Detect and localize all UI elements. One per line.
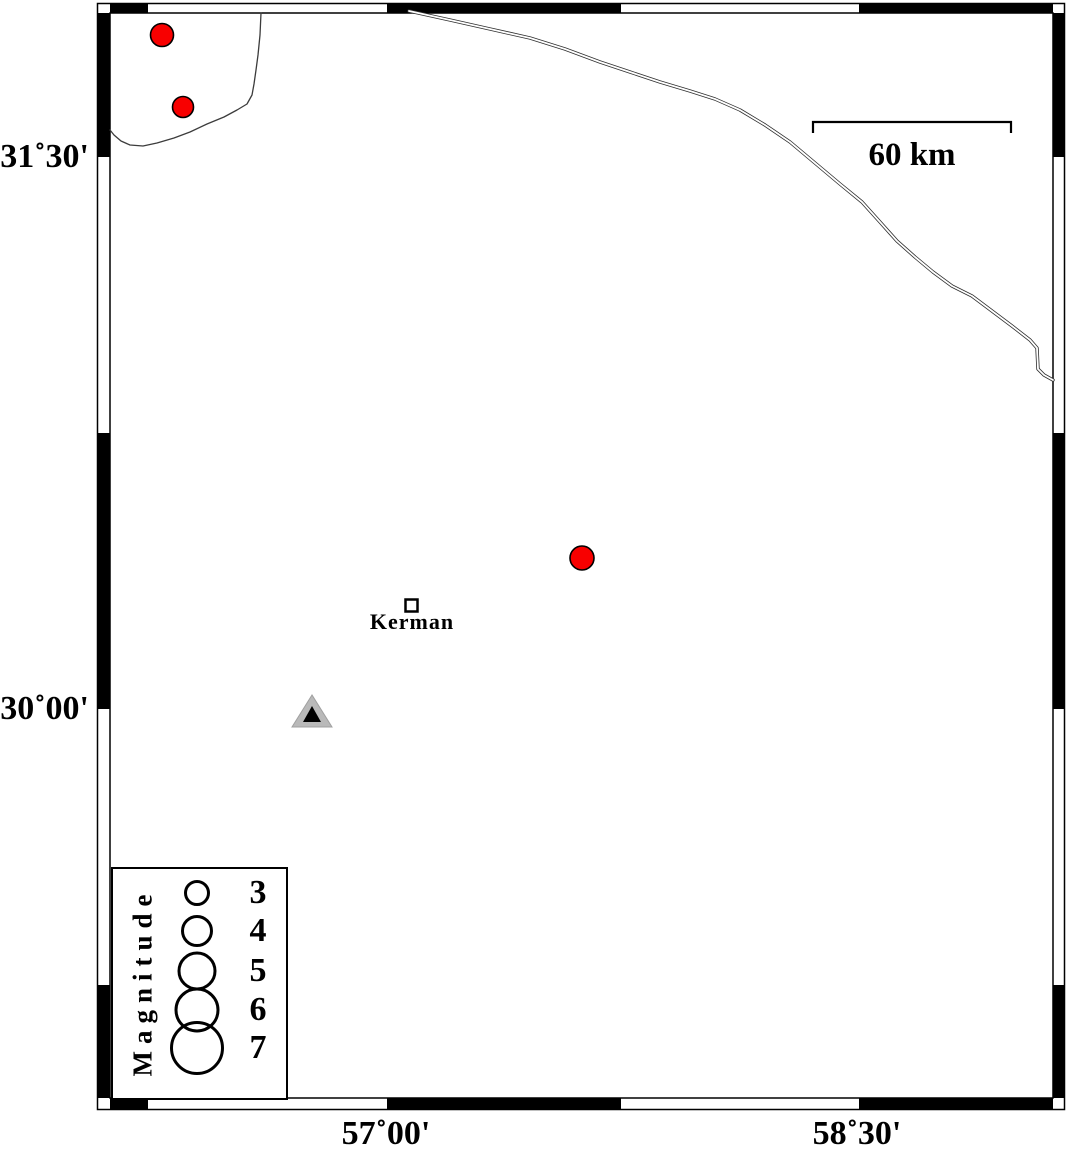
frame-segment bbox=[98, 433, 111, 709]
lon-tick-label-58-30: 58˚30' bbox=[777, 1117, 937, 1150]
lon-tick-label-57-00: 57˚00' bbox=[306, 1117, 466, 1150]
legend-value-7: 7 bbox=[236, 1031, 280, 1065]
legend-circle-mag3 bbox=[186, 882, 209, 905]
city-label-kerman: Kerman bbox=[332, 611, 492, 633]
road-line-casing bbox=[409, 11, 1053, 380]
seismicity-map-figure: 31˚30' 30˚00' 57˚00' 58˚30' 60 km Kerman… bbox=[0, 0, 1066, 1150]
frame-segment bbox=[387, 1098, 621, 1109]
legend-value-5: 5 bbox=[236, 954, 280, 988]
lat-tick-label-30-00: 30˚00' bbox=[0, 692, 89, 726]
frame-segment bbox=[1053, 433, 1065, 709]
frame-segment bbox=[1053, 985, 1065, 1098]
road-line-core bbox=[409, 11, 1053, 380]
legend-title: Magnitude bbox=[130, 887, 157, 1076]
legend-value-6: 6 bbox=[236, 993, 280, 1027]
legend-value-3: 3 bbox=[236, 876, 280, 910]
scale-bar-label: 60 km bbox=[832, 139, 992, 172]
boundary-line bbox=[110, 13, 261, 146]
frame-segment bbox=[98, 985, 111, 1098]
frame-segment bbox=[110, 4, 148, 14]
lat-tick-label-31-30: 31˚30' bbox=[0, 140, 89, 174]
frame-segment bbox=[1053, 13, 1065, 157]
station-icon bbox=[292, 695, 332, 727]
earthquake-marker bbox=[173, 97, 194, 118]
legend-value-4: 4 bbox=[236, 914, 280, 948]
earthquake-marker bbox=[570, 546, 594, 570]
frame-segment bbox=[859, 4, 1053, 14]
frame-segment bbox=[859, 1098, 1053, 1109]
frame-segment bbox=[98, 13, 111, 157]
earthquake-marker bbox=[151, 24, 174, 47]
scale-bar bbox=[813, 122, 1011, 133]
frame-segment bbox=[387, 4, 621, 14]
